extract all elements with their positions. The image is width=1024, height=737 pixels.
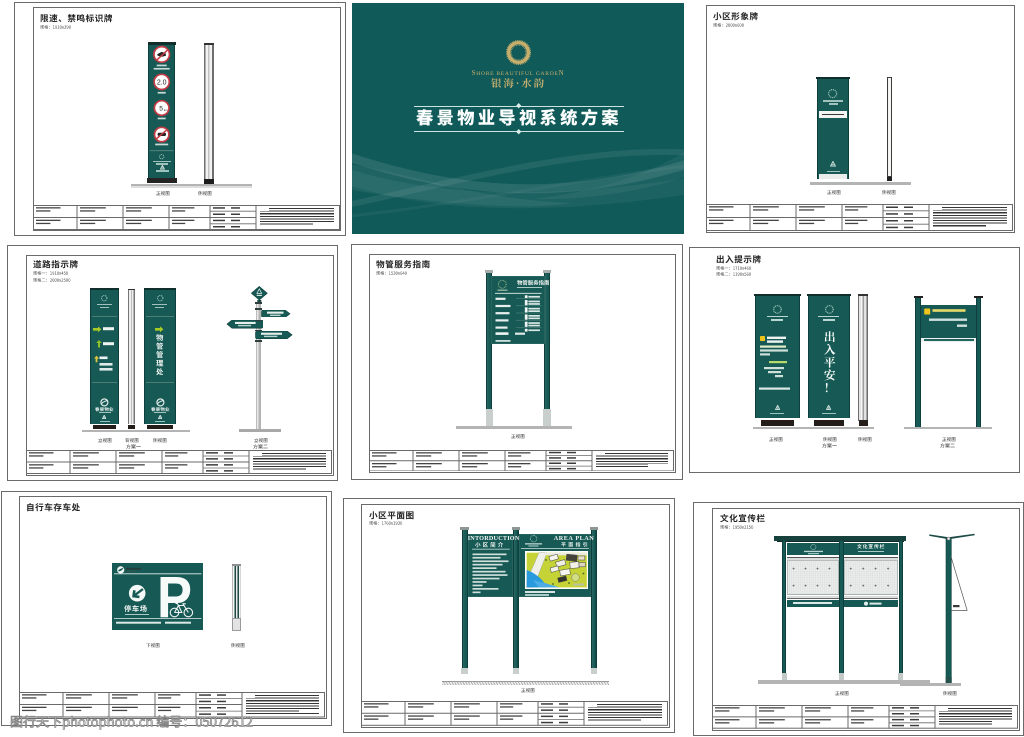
svg-text:P: P [157,565,192,630]
svg-text:km: km [164,108,168,112]
svg-text:2.0: 2.0 [157,79,167,86]
svg-text:5: 5 [159,105,163,112]
